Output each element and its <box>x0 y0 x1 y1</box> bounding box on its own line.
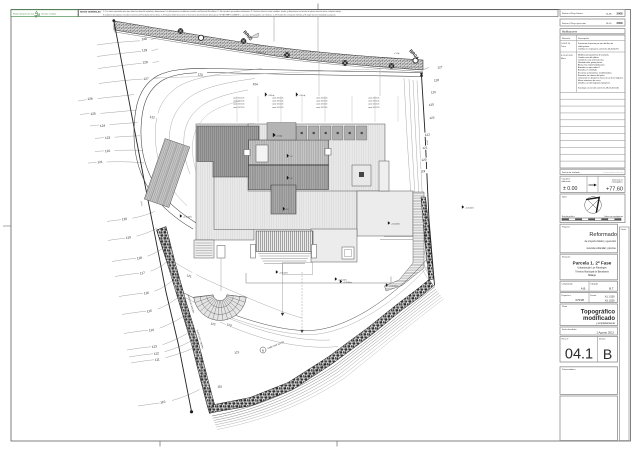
svg-text:Altura más impermeabilización.: Altura más impermeabilización. <box>578 64 605 67</box>
svg-text:A3 1/200: A3 1/200 <box>605 299 615 302</box>
svg-text:Proyecto nº: Proyecto nº <box>562 294 572 297</box>
svg-text:Fuente: Fuente <box>621 228 626 231</box>
svg-text:+77.60: +77.60 <box>606 186 623 192</box>
svg-text:Dibujado: Dibujado <box>591 283 598 285</box>
svg-text:Muros exteriores de cerca.: Muros exteriores de cerca. <box>578 79 601 82</box>
svg-text:Barandas en cubierta del patio: Barandas en cubierta del patio. <box>578 74 605 77</box>
svg-text:A1 1/100: A1 1/100 <box>605 296 615 299</box>
svg-text:Sustituye a la versión con fec: Sustituye a la versión con fecha 29-07-2… <box>578 87 619 90</box>
svg-text:16-11-: 16-11- <box>606 23 612 25</box>
svg-text:Modificaciones: Modificaciones <box>562 31 578 33</box>
svg-text:Cambios en el proyecto con fec: Cambios en el proyecto con fecha 03-2010… <box>578 48 619 51</box>
svg-text:B.T.: B.T. <box>609 287 614 291</box>
svg-text:Descripción: Descripción <box>578 37 590 40</box>
svg-text:2008: 2008 <box>617 12 623 16</box>
svg-text:Versión: Versión <box>599 338 605 341</box>
svg-text:Plano nº: Plano nº <box>562 338 569 341</box>
svg-text:o topográfico: o topográfico <box>612 181 623 184</box>
svg-text:Revisión: Revisión <box>562 38 571 40</box>
svg-text:Término Municipal de Benahavís: Término Municipal de Benahavís <box>575 270 609 273</box>
svg-text:vivienda unifamiliar y piscina: vivienda unifamiliar y piscina <box>586 247 616 250</box>
svg-text:A.B.: A.B. <box>581 287 587 291</box>
svg-text:Proyecto: Proyecto <box>562 225 571 228</box>
svg-text:Sustitución la piscina por otr: Sustitución la piscina por otra de fibra… <box>578 42 613 45</box>
svg-text:Meca.: Meca. <box>561 58 567 60</box>
svg-text:Patrocinadores: Patrocinadores <box>562 368 575 371</box>
svg-text:I.-09 01 10: I.-09 01 10 <box>561 43 570 45</box>
svg-text:Modificación geometría de la p: Modificación geometría de la planta. <box>578 53 610 56</box>
svg-text:y emplazamiento: y emplazamiento <box>596 322 616 325</box>
svg-text:II.-29 07 2011: II.-29 07 2011 <box>561 55 573 57</box>
svg-text:Armados en ventilado.: Armados en ventilado. <box>578 69 598 72</box>
svg-text:Cambio cota del edificio.: Cambio cota del edificio. <box>578 56 600 59</box>
svg-text:Cambio la cota azul la piscina: Cambio la cota azul la piscina. <box>578 59 605 62</box>
svg-text:Escala gráfica: Escala gráfica <box>562 216 575 218</box>
svg-text:Armados en aparcados II.: Armados en aparcados II. <box>578 66 601 69</box>
svg-text:B: B <box>603 346 612 362</box>
svg-text:2008: 2008 <box>617 21 623 25</box>
svg-text:de proyecto básico y ejecución: de proyecto básico y ejecución <box>585 240 617 243</box>
svg-text:Colocación en desjarret, muros: Colocación en desjarret, muros al sur de… <box>578 76 624 79</box>
svg-text:(el geométrico del dia): (el geométrico del dia) <box>603 171 623 174</box>
svg-text:vidrio prisma.: vidrio prisma. <box>578 46 590 48</box>
svg-text:Plano: Plano <box>562 306 568 308</box>
svg-text:Fecha de traslado: Fecha de traslado <box>562 171 580 174</box>
svg-text:Situación: Situación <box>562 255 570 258</box>
svg-text:Detalles can del maquinal repr: Detalles can del maquinal reproyecto. <box>578 81 611 84</box>
svg-text:04.1: 04.1 <box>565 346 593 362</box>
svg-text:Trans.: Trans. <box>561 45 567 48</box>
svg-text:Comprobado: Comprobado <box>562 282 573 285</box>
svg-text:Málaga: Málaga <box>588 275 596 277</box>
svg-text:Topográfico: Topográfico <box>581 309 616 315</box>
svg-text:Cotas en centímetros: Cotas en centímetros <box>604 215 623 218</box>
svg-text:Nivelado solar gunita planta.: Nivelado solar gunita planta. <box>578 61 603 64</box>
svg-text:Fecha el Proy. básico: Fecha el Proy. básico <box>562 12 584 15</box>
svg-text:Urbanización Los Flamingos: Urbanización Los Flamingos <box>578 267 608 270</box>
svg-text:Escala: Escala <box>591 295 598 297</box>
svg-text:Parcela 1. 2ª Fase: Parcela 1. 2ª Fase <box>573 261 612 266</box>
svg-text:Reformado: Reformado <box>589 232 617 238</box>
svg-text:± 0.00: ± 0.00 <box>563 186 577 192</box>
svg-text:079/08: 079/08 <box>575 298 584 302</box>
svg-text:edificación: edificación <box>562 181 571 183</box>
svg-text:Fecha el Proy. ejecución: Fecha el Proy. ejecución <box>562 22 587 25</box>
svg-text:10-09-: 10-09- <box>606 13 613 15</box>
svg-text:Fecha de edición: Fecha de edición <box>562 329 576 331</box>
svg-text:1 Agosto 2011: 1 Agosto 2011 <box>596 331 614 335</box>
